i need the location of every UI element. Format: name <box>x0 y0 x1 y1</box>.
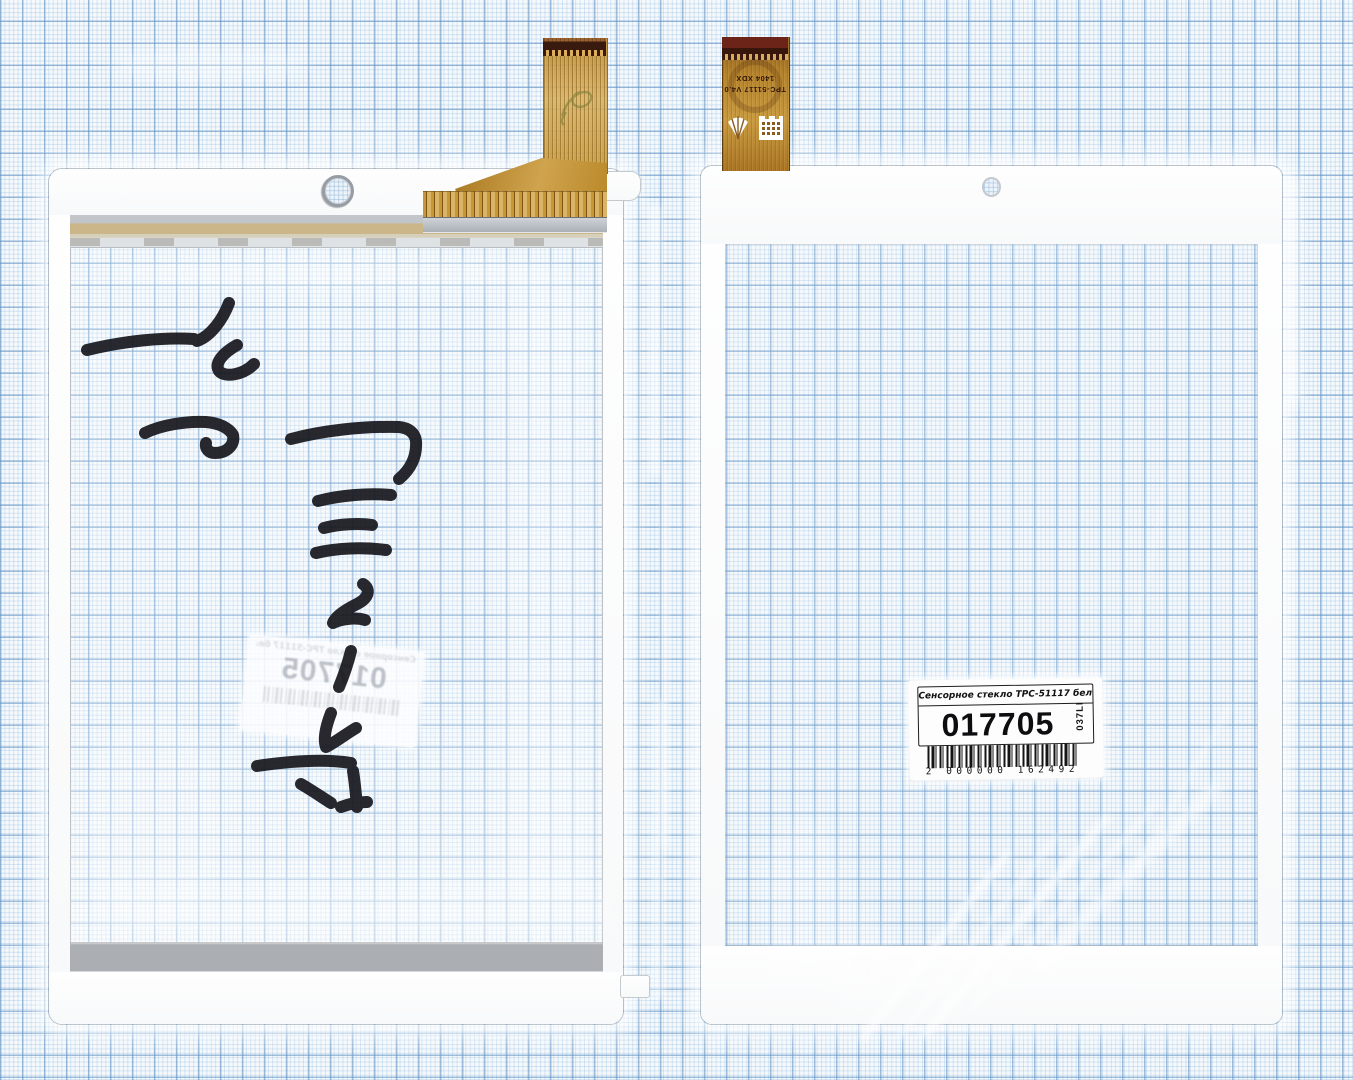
handwriting-stroke <box>291 427 416 479</box>
paper-blotch <box>110 48 310 82</box>
cable-print: TPC-51117 V4.0 1404 XDX <box>722 73 788 95</box>
handwriting-stroke <box>218 345 254 375</box>
barcode-digits: 2 000000 162492 <box>926 764 1079 778</box>
handwriting-stroke <box>324 524 372 528</box>
handwriting-stroke <box>145 422 233 453</box>
frame-left <box>701 244 725 946</box>
paper-streak <box>650 700 666 1000</box>
handwriting-stroke <box>339 651 351 687</box>
frame-tab-bottom-right <box>620 975 650 998</box>
cable-logos <box>725 112 787 142</box>
cable-bond-comb <box>423 191 607 218</box>
handwriting-stroke <box>341 802 367 807</box>
paper-streak <box>648 205 662 475</box>
handwriting-stroke <box>333 584 368 623</box>
frame-right <box>1258 244 1282 946</box>
cable-bond-strip <box>423 217 607 233</box>
cable-connector-tip <box>543 38 606 50</box>
label-frame: Сенсорное стекло TPC-51117 белый 017705 … <box>917 683 1094 746</box>
flex-cable-right: TPC-51117 V4.0 1404 XDX <box>720 35 790 172</box>
cable-model-text: TPC-51117 V4.0 <box>722 84 788 95</box>
handwriting-marks <box>49 169 623 1024</box>
cable-connector-teeth <box>543 50 606 56</box>
label-side-code: 037LI <box>1074 691 1089 741</box>
handwriting-stroke <box>257 761 351 766</box>
digitizer-front-panel: Сенсорное стекло TPC-51117 белый 017705 … <box>700 165 1283 1025</box>
glass-haze <box>831 901 891 1021</box>
handwriting-stroke <box>316 548 386 553</box>
scanned-product-photo: Сенсорное стекло TPC-51117 белый 017705 <box>0 0 1353 1080</box>
handwriting-stroke <box>301 784 331 803</box>
paper-streak <box>1284 175 1300 405</box>
fan-logo <box>728 116 748 139</box>
cable-connector-tip <box>722 37 788 48</box>
label-number: 017705 <box>929 704 1068 745</box>
paper-blotch <box>300 120 420 146</box>
handwriting-stroke <box>87 338 194 350</box>
handwriting-stroke <box>318 494 391 501</box>
cable-batch-text: 1404 XDX <box>722 73 788 84</box>
cable-watermark <box>554 78 598 128</box>
camera-hole <box>982 177 1001 197</box>
building-logo <box>759 116 783 140</box>
flex-cable-left <box>423 37 623 235</box>
product-label: Сенсорное стекло TPC-51117 белый 017705 … <box>908 677 1104 780</box>
cable-ribbon <box>543 38 608 174</box>
handwriting-stroke <box>197 303 229 341</box>
handwriting-stroke <box>325 713 356 747</box>
digitizer-back-panel: Сенсорное стекло TPC-51117 белый 017705 <box>48 168 624 1025</box>
